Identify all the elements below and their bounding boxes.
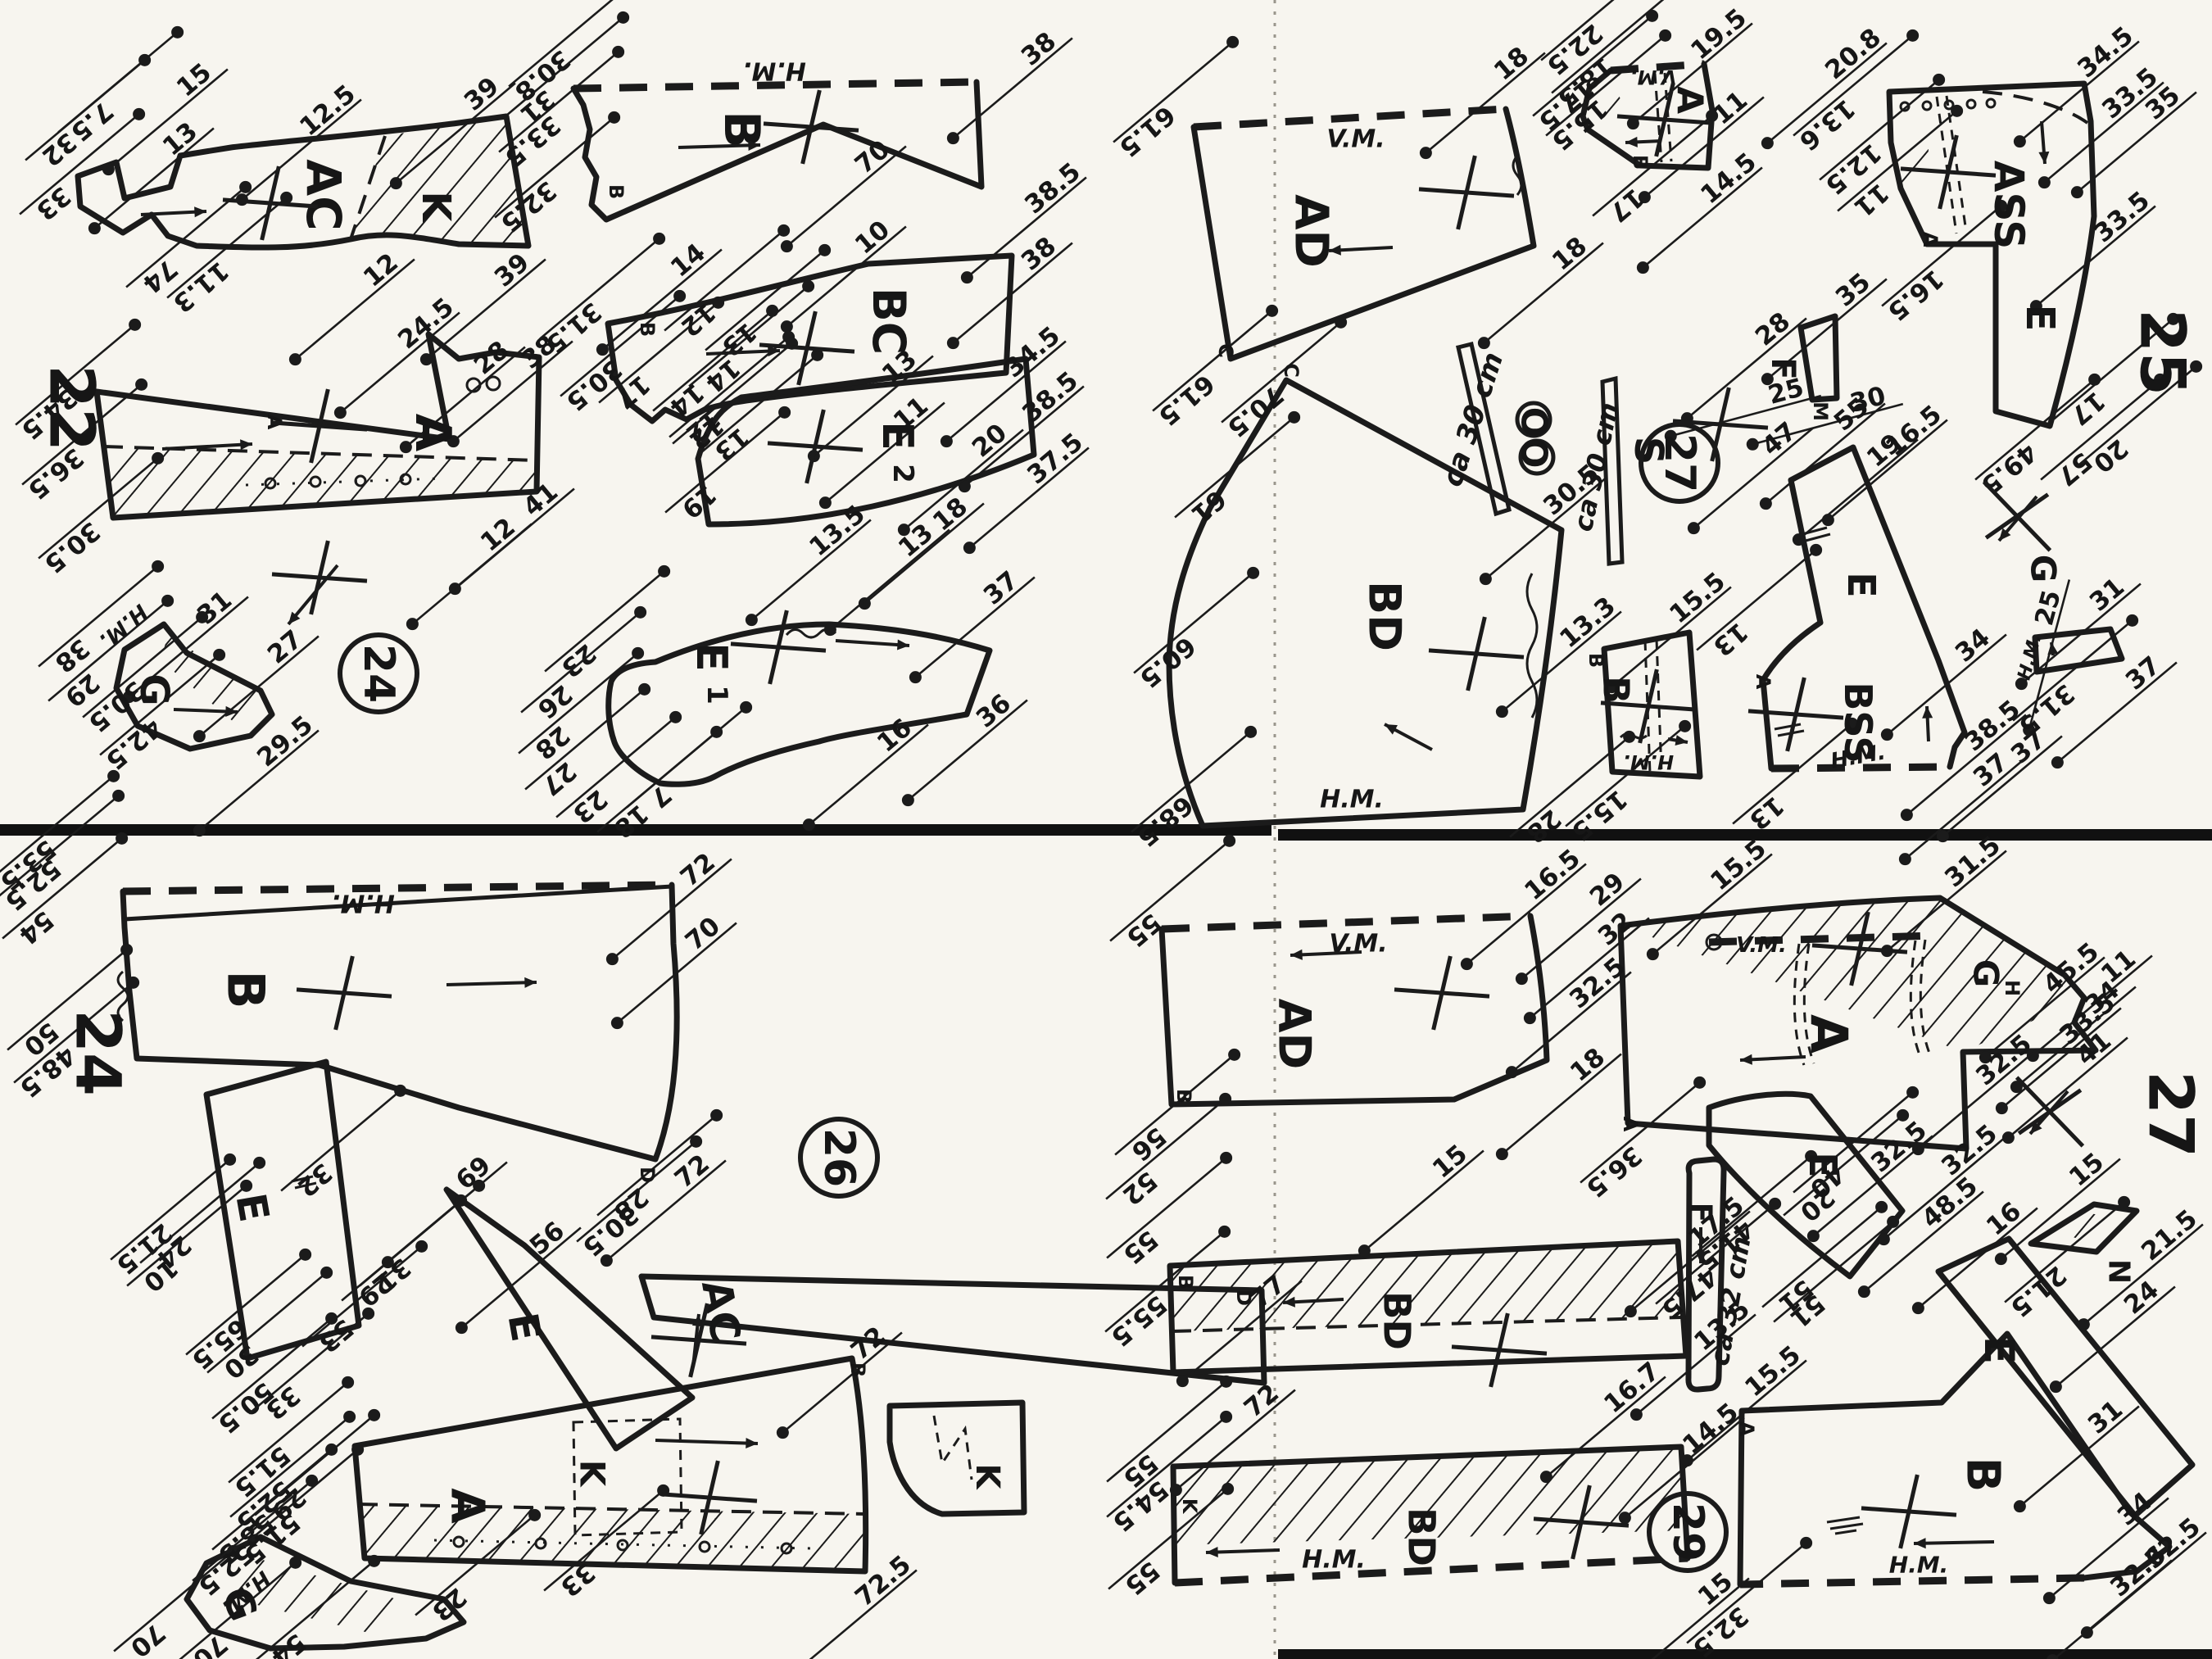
notch-dot [634, 606, 646, 619]
piece-label: E [1839, 572, 1883, 597]
notch-dot [1646, 10, 1658, 22]
grain-cross [726, 603, 831, 691]
measurement-label: 55 [1119, 1555, 1165, 1600]
piece-label: E [1975, 1336, 2023, 1364]
measurement-label: 37 [2120, 650, 2166, 696]
divider-horizontal-right [1278, 829, 2212, 841]
notch-dot [1223, 835, 1235, 847]
notch-dot [632, 647, 644, 660]
measurement-label: 32 [292, 1157, 338, 1202]
grain-cross [1424, 610, 1529, 697]
leader-line [627, 707, 746, 807]
measurement-label: 70 [680, 911, 726, 956]
measurement-label: 49.5 [1975, 437, 2042, 501]
notch-dot [781, 240, 793, 252]
notch-dot [334, 406, 347, 419]
notch-dot [1912, 1302, 1924, 1314]
direction-arrow-head [897, 640, 909, 650]
notch-dot [777, 224, 790, 237]
notch-dot [133, 108, 145, 120]
notch-dot [171, 26, 184, 39]
measurement-label: 13 [1743, 790, 1789, 835]
measurement-label: 54 [265, 1627, 311, 1659]
notch-dot [306, 1475, 318, 1487]
notch-dot [824, 623, 836, 636]
measurement-label: 31 [2083, 1394, 2128, 1439]
seam-label: H.M. [1889, 1552, 1949, 1579]
seam-label: H.M. [331, 889, 395, 918]
notch-dot [320, 1267, 333, 1279]
notch-dot [1933, 74, 1945, 86]
measurement-label: 70 [125, 1617, 170, 1659]
measurement-label: 13 [893, 518, 939, 563]
measurement-label: 12 [358, 247, 404, 292]
notch-dot [1901, 809, 1913, 821]
measurement-label: 36.5 [22, 442, 89, 505]
notch-dot [902, 794, 914, 806]
notch-dot [1266, 305, 1278, 317]
measurement-label: 29.5 [252, 710, 319, 773]
notch-dot [1480, 573, 1492, 585]
notch-dot [239, 181, 252, 193]
notch-dot [1810, 544, 1822, 556]
piece-b-outline [573, 82, 981, 220]
measurement-label: 14.5 [1695, 147, 1762, 211]
notch-dot [362, 1308, 374, 1320]
notch-dot [368, 1409, 380, 1421]
notch-dot [1630, 1408, 1643, 1421]
notch-dot [1220, 1152, 1232, 1164]
notch-dot [1659, 29, 1671, 42]
measurement-label: 55 [1117, 1224, 1163, 1269]
notch-dot [456, 1321, 468, 1334]
notch-dot [611, 1017, 623, 1029]
notch-dot [712, 297, 724, 309]
notch-dot [224, 1154, 236, 1166]
measurement-label: 13 [716, 316, 762, 361]
notch-dot [88, 222, 101, 234]
point-label: B [1629, 155, 1652, 170]
notch-dot [1516, 972, 1528, 985]
notch-dot [818, 244, 831, 256]
notch-dot [638, 683, 650, 696]
measurement-label: 33 [30, 180, 76, 225]
piece-b3-outline [123, 885, 677, 1159]
notch-dot [240, 1180, 252, 1192]
direction-arrow-head [1625, 137, 1638, 147]
notch-dot [1807, 1230, 1820, 1242]
notch-dot [1288, 411, 1300, 424]
measurement-label: 35 [1830, 267, 1876, 312]
notch-dot [1540, 1471, 1552, 1483]
measurement-label: 72 [669, 1149, 715, 1194]
notch-dot [1496, 1148, 1508, 1160]
measurement-label: 34 [1950, 623, 1996, 668]
measurement-label: 61.5 [1113, 100, 1181, 163]
notch-dot [342, 1376, 354, 1389]
notch-dot [1875, 1201, 1888, 1213]
notch-dot [1420, 147, 1432, 159]
notch-dot [1693, 1077, 1706, 1089]
notch-dot [415, 1240, 428, 1253]
notch-dot [127, 977, 139, 989]
piece-label: A [404, 414, 461, 452]
measurement-label: 36 [971, 688, 1017, 733]
measurement-label: 20 [967, 418, 1013, 463]
piece-label: E [687, 642, 736, 672]
measurement-label: 38 [1016, 26, 1062, 71]
notch-dot [2078, 1318, 2090, 1330]
seam-label: H.M. [1320, 786, 1384, 814]
direction-arrow-head [1206, 1547, 1218, 1557]
notch-dot [1496, 705, 1508, 718]
measurement-label: 38.5 [1019, 157, 1086, 220]
piece-label: BC [863, 288, 915, 355]
notch-dot [947, 337, 959, 349]
piece-label: A [1799, 1014, 1859, 1054]
measurement-label: 33.5 [2088, 186, 2155, 249]
notch-dot [1335, 316, 1347, 329]
notch-dot [1244, 726, 1257, 738]
notch-dot [819, 496, 832, 509]
direction-arrow-head [2038, 152, 2049, 164]
measurement-label: 56 [1126, 1121, 1172, 1166]
piece-label: A [441, 1488, 494, 1524]
piece-ad4-vm-edge [1162, 916, 1530, 929]
point-label: A [1619, 1117, 1642, 1132]
notch-dot [325, 1444, 338, 1456]
measurement-label: 19.5 [1685, 3, 1752, 66]
hash-mark [1827, 1517, 1863, 1534]
measurement-label: 26 [532, 678, 578, 723]
notch-dot [1478, 337, 1490, 349]
piece-label: E [2017, 305, 2063, 332]
notch-dot [1688, 522, 1700, 534]
notch-dot [2014, 135, 2026, 147]
notch-dot [781, 320, 793, 333]
piece-label: G [2024, 555, 2064, 582]
notch-dot [1906, 29, 1919, 42]
notch-dot [390, 177, 402, 189]
notch-dot [1761, 137, 1774, 149]
piece-bd-ease-wiggle [1527, 573, 1537, 718]
measurement-label: 24.5 [392, 292, 460, 356]
measurement-label: 72 [1239, 1378, 1285, 1423]
notch-dot [658, 565, 670, 578]
measurement-label: 57 [2051, 446, 2097, 491]
button-mark [1967, 100, 1975, 108]
notch-dot [1769, 1198, 1781, 1210]
piece-label: B [1956, 1457, 2010, 1493]
point-label: K [1178, 1498, 1201, 1515]
notch-dot [606, 953, 619, 965]
piece-f-outline [1801, 316, 1837, 400]
notch-dot [1679, 720, 1691, 732]
grain-cross [267, 533, 372, 621]
measurement-label: 55.5 [1105, 1290, 1172, 1353]
notch-dot [107, 770, 120, 782]
pattern-sheet: 151312.53939127411.37.5323324.5283841123… [0, 0, 2212, 1659]
notch-dot [2014, 1500, 2026, 1512]
notch-dot [1461, 958, 1473, 970]
point-label: B [846, 1362, 869, 1377]
notch-dot [1220, 1411, 1232, 1423]
measurement-label: 16 [872, 713, 918, 758]
piece-label: AD [1269, 999, 1321, 1070]
piece-label: AC [296, 159, 351, 230]
point-label: C [1214, 343, 1237, 358]
measurement-label: 14.5 [1677, 1398, 1744, 1461]
point-label: D [1232, 1290, 1255, 1306]
notch-dot [1899, 853, 1911, 865]
notch-dot [129, 319, 141, 331]
notch-dot [1219, 1093, 1231, 1105]
piece-k-detail-dash [934, 1416, 972, 1480]
notch-dot [161, 595, 174, 607]
divider-bottom-right [1278, 1649, 2212, 1659]
notch-dot [193, 824, 206, 836]
page-number: 27 [2135, 1071, 2208, 1158]
point-label: B [1174, 1275, 1197, 1290]
button-mark [1923, 102, 1931, 110]
notch-dot [138, 54, 151, 66]
piece-label: 1 [700, 685, 733, 705]
notch-dot [1226, 36, 1239, 48]
notch-dot [289, 1557, 301, 1569]
measurement-label: 72 [675, 847, 721, 892]
measurement-label: 18 [1565, 1042, 1611, 1087]
measurement-label: 16.7 [1598, 1357, 1666, 1420]
piece-label: K [413, 191, 459, 223]
measurement-label: 28 [529, 719, 575, 764]
notch-dot [1897, 1109, 1909, 1122]
piece-label: G [1966, 959, 2006, 987]
measurement-label: 70 [850, 134, 895, 179]
notch-dot [116, 832, 128, 845]
point-label: C [1280, 363, 1303, 378]
notch-dot [1793, 533, 1805, 546]
notch-dot [617, 11, 629, 24]
measurement-label: 37 [978, 565, 1024, 610]
notch-dot [152, 452, 164, 465]
direction-arrow-head [1290, 950, 1303, 960]
measurement-label: 47 [1756, 416, 1802, 461]
notch-dot [1995, 1253, 2007, 1265]
measurement-label: 28 [1521, 803, 1566, 848]
point-label: A [1919, 232, 1942, 247]
measurement-label: 38 [1016, 231, 1062, 276]
notch-dot [2118, 1196, 2130, 1208]
seam-label: V.M. [1736, 933, 1787, 958]
notch-dot [2043, 1592, 2056, 1604]
notch-dot [325, 1312, 338, 1325]
measurement-label: 39 [489, 247, 535, 292]
point-label: A [1735, 1421, 1758, 1437]
piece-ass-dash-curve [1983, 92, 2087, 123]
notch-dot [1228, 1049, 1240, 1061]
notch-dot [746, 614, 758, 626]
notch-dot [343, 1411, 356, 1423]
notch-dot [778, 406, 791, 419]
measurement-label: 61 [1185, 483, 1231, 528]
notch-dot [2050, 1380, 2062, 1393]
notch-dot [608, 111, 620, 124]
notch-dot [1647, 948, 1659, 960]
notch-dot [673, 290, 686, 302]
circled-number: 24 [354, 644, 403, 703]
piece-label: BD [1400, 1507, 1444, 1566]
notch-dot [1247, 567, 1259, 579]
direction-arrow-head [1922, 706, 1933, 718]
measurement-label: 48.5 [1916, 1172, 1983, 1235]
notch-dot [1951, 105, 1963, 117]
piece-label: E [1801, 1152, 1845, 1177]
measurement-label: 15.5 [1739, 1340, 1806, 1403]
measurement-label: 19 [676, 478, 722, 524]
measurement-label: 11.3 [167, 256, 234, 319]
measurement-label: 16.5 [1882, 264, 1949, 327]
piece-label: AD [1285, 194, 1338, 268]
measurement-label: 15 [1427, 1139, 1473, 1184]
notch-dot [802, 280, 814, 292]
piece-ass-e-outline [1889, 84, 2094, 426]
measurement-label: 29 [1584, 867, 1630, 912]
direction-arrow-head [194, 206, 206, 217]
direction-arrow-head [240, 439, 252, 450]
measurement-label: 23 [567, 783, 613, 828]
point-label: B [1584, 653, 1607, 668]
grain-cross [292, 949, 397, 1036]
circled-number: 26 [814, 1128, 863, 1187]
seam-label: H.M. [742, 57, 806, 85]
notch-dot [1619, 1512, 1631, 1524]
piece-label: A [1669, 86, 1711, 114]
notch-dot [2002, 1131, 2015, 1144]
measurement-label: 17 [2065, 385, 2110, 430]
direction-arrow [655, 1440, 758, 1444]
notch-dot [193, 730, 206, 742]
notch-dot [1524, 1012, 1536, 1024]
notch-dot [947, 132, 959, 144]
measurement-label: 52 [1117, 1165, 1163, 1210]
direction-arrow [446, 982, 537, 985]
notch-dot [1881, 728, 1893, 741]
page-number: 22 [36, 365, 109, 451]
point-label: H [2001, 980, 2024, 996]
seam-label: H.M. [2015, 632, 2047, 682]
measurement-label: 16.5 [1519, 844, 1586, 907]
notch-dot [1637, 261, 1649, 274]
notch-dot [406, 618, 419, 630]
notch-dot [1878, 1233, 1890, 1245]
piece-label: OO [1513, 407, 1555, 469]
measurement-label: 31 [192, 585, 238, 630]
grain-cross [1414, 148, 1519, 236]
measurement-label: 16 [1981, 1196, 2027, 1241]
piece-b3-seam-line [125, 886, 672, 919]
notch-dot [1176, 1375, 1189, 1387]
point-label: B [1172, 1089, 1195, 1104]
notch-dot [963, 542, 976, 554]
piece-label: 2 [886, 464, 919, 483]
notch-dot [135, 378, 147, 391]
measurement-label: 27 [262, 624, 308, 669]
circled-number: 29 [1663, 1503, 1712, 1562]
measurement-label: 16.5 [1880, 400, 1947, 463]
measurement-label: 36.5 [1580, 1140, 1648, 1203]
measurement-label: 28 [1750, 306, 1796, 351]
measurement-label: 25 [2029, 587, 2067, 629]
measurement-label: 21.5 [2005, 1260, 2072, 1323]
measurement-label: 14 [665, 238, 711, 283]
notch-dot [653, 233, 665, 245]
notch-dot [1760, 497, 1772, 510]
piece-b4-hm-edge [1740, 1578, 2084, 1584]
seam-label: H.M. [1623, 750, 1674, 773]
notch-dot [710, 1109, 723, 1122]
measurement-label: 13 [1707, 616, 1753, 661]
notch-dot [213, 649, 225, 661]
piece-label: K [968, 1464, 1006, 1491]
measurement-label: 15.5 [1664, 567, 1731, 630]
direction-arrow-head [746, 1438, 758, 1448]
piece-label: K [573, 1460, 613, 1488]
point-label: B [636, 322, 659, 337]
piece-label: BD [1376, 1291, 1419, 1350]
piece-label: B [713, 111, 770, 148]
notch-dot [420, 353, 433, 365]
piece-label: B [216, 970, 276, 1009]
pattern-sheet-svg: 151312.53939127411.37.5323324.5283841123… [0, 0, 2212, 1659]
circled-number: 27 [1655, 433, 1704, 492]
piece-label: N [2102, 1259, 2136, 1284]
measurement-label: 20.8 [1820, 23, 1887, 86]
notch-dot [2038, 176, 2051, 188]
direction-arrow-head [524, 977, 537, 988]
notch-dot [120, 944, 133, 956]
notch-dot [669, 711, 682, 723]
measurement-label: 23 [555, 637, 601, 682]
point-label: B [605, 184, 628, 199]
notch-dot [196, 611, 208, 623]
measurement-label: 27 [536, 755, 582, 800]
measurement-label: 28 [469, 335, 514, 380]
measurement-label: 12 [475, 512, 521, 557]
notch-dot [102, 163, 115, 175]
measurement-label: 13.6 [1793, 93, 1861, 156]
measurement-label: 18 [1489, 41, 1534, 86]
notch-dot [1220, 1376, 1232, 1388]
notch-dot [596, 343, 609, 356]
piece-label: G [131, 673, 177, 705]
measurement-label: 61.5 [1153, 369, 1220, 432]
grain-cross [1389, 949, 1494, 1036]
seam-label: H.M. [94, 599, 152, 653]
notch-dot [1822, 514, 1834, 526]
notch-dot [1218, 1226, 1231, 1238]
piece-label: E [873, 421, 922, 451]
notch-dot [394, 1085, 406, 1097]
notch-dot [1222, 1483, 1234, 1495]
piece-k-detail-outline [890, 1403, 1024, 1514]
direction-arrow [1914, 1542, 1994, 1543]
measurement-label: 10 [850, 215, 895, 260]
measurement-label: 21.5 [2136, 1204, 2203, 1267]
notch-dot [1506, 1066, 1518, 1078]
notch-dot [1358, 1244, 1371, 1257]
piece-label: B [1595, 676, 1637, 704]
piece-ac-k-hatch [351, 116, 528, 246]
